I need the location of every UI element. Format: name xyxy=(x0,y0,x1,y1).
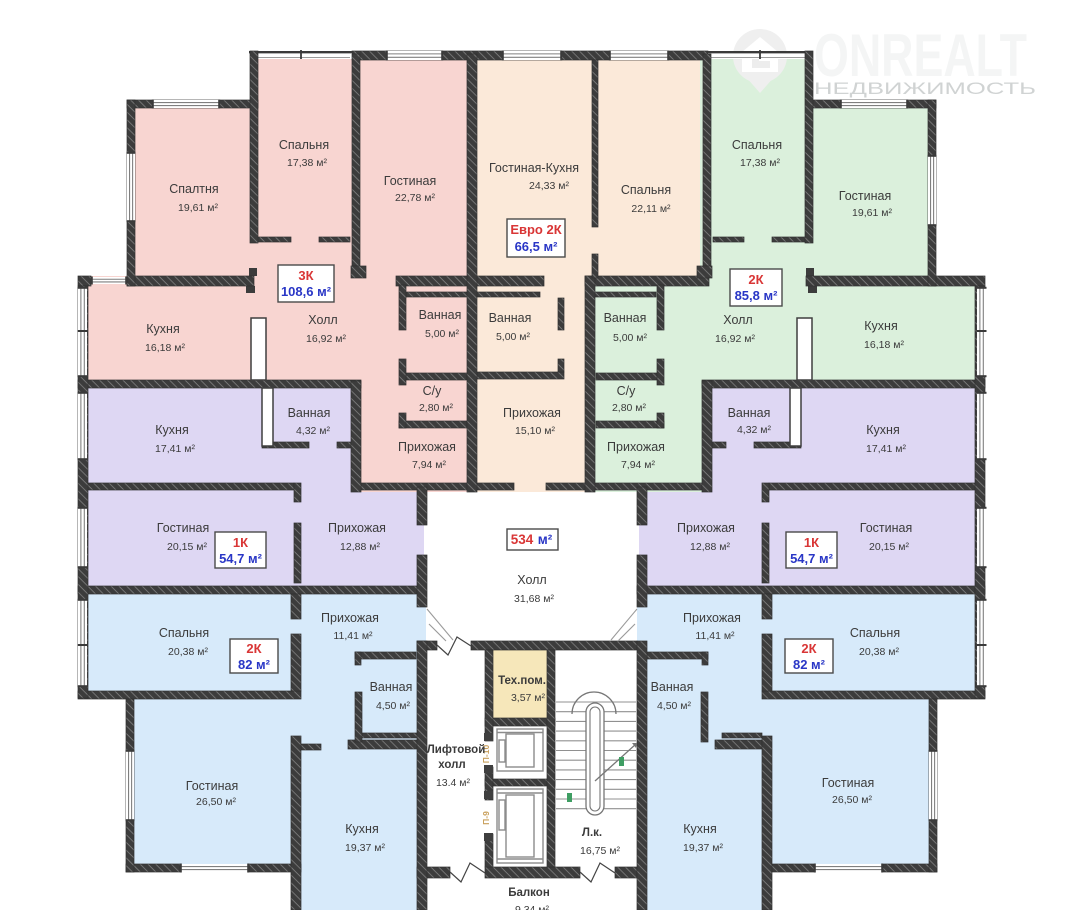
svg-text:24,33 м²: 24,33 м² xyxy=(529,180,569,192)
svg-text:16,18 м²: 16,18 м² xyxy=(864,339,904,351)
svg-text:534: 534 xyxy=(511,532,534,547)
svg-text:85,8 м²: 85,8 м² xyxy=(735,288,779,303)
svg-text:12,88 м²: 12,88 м² xyxy=(340,541,380,553)
svg-text:Прихожая: Прихожая xyxy=(321,611,379,625)
svg-text:Спальня: Спальня xyxy=(159,626,209,640)
svg-text:Ванная: Ванная xyxy=(419,308,462,322)
svg-text:4,32 м²: 4,32 м² xyxy=(296,425,331,437)
svg-text:Гостиная: Гостиная xyxy=(157,521,209,535)
svg-text:22,78 м²: 22,78 м² xyxy=(395,192,435,204)
svg-text:5,00 м²: 5,00 м² xyxy=(496,331,531,343)
svg-text:7,94 м²: 7,94 м² xyxy=(412,459,447,471)
svg-text:17,38 м²: 17,38 м² xyxy=(287,157,327,169)
svg-text:Ванная: Ванная xyxy=(288,406,331,420)
svg-text:2К: 2К xyxy=(748,272,763,287)
svg-text:Кухня: Кухня xyxy=(155,423,188,437)
svg-text:Гостиная-Кухня: Гостиная-Кухня xyxy=(489,161,579,175)
svg-text:Холл: Холл xyxy=(308,313,337,327)
svg-text:Ванная: Ванная xyxy=(604,311,647,325)
svg-text:П-9: П-9 xyxy=(481,811,491,825)
svg-text:16,18 м²: 16,18 м² xyxy=(145,342,185,354)
svg-text:4,50 м²: 4,50 м² xyxy=(657,700,692,712)
svg-text:2,80 м²: 2,80 м² xyxy=(612,402,647,414)
svg-text:Л.к.: Л.к. xyxy=(582,827,602,839)
svg-text:9,34 м²: 9,34 м² xyxy=(515,904,550,910)
svg-text:7,94 м²: 7,94 м² xyxy=(621,459,656,471)
svg-text:66,5 м²: 66,5 м² xyxy=(515,239,559,254)
svg-text:3К: 3К xyxy=(298,268,313,283)
svg-text:17,41 м²: 17,41 м² xyxy=(155,443,195,455)
svg-text:Гостиная: Гостиная xyxy=(186,779,238,793)
svg-text:Гостиная: Гостиная xyxy=(860,521,912,535)
svg-text:20,15 м²: 20,15 м² xyxy=(167,541,207,553)
svg-text:Прихожая: Прихожая xyxy=(503,406,561,420)
svg-text:Прихожая: Прихожая xyxy=(398,440,456,454)
svg-text:11,41 м²: 11,41 м² xyxy=(695,630,735,642)
svg-text:холл: холл xyxy=(438,759,465,771)
svg-text:4,50 м²: 4,50 м² xyxy=(376,700,411,712)
svg-text:Ванная: Ванная xyxy=(489,311,532,325)
svg-text:Прихожая: Прихожая xyxy=(677,521,735,535)
svg-text:54,7 м²: 54,7 м² xyxy=(219,551,263,566)
svg-text:12,88 м²: 12,88 м² xyxy=(690,541,730,553)
svg-text:19,61 м²: 19,61 м² xyxy=(852,207,892,219)
svg-text:20,38 м²: 20,38 м² xyxy=(859,646,899,658)
svg-text:2,80 м²: 2,80 м² xyxy=(419,402,454,414)
svg-text:Гостиная: Гостиная xyxy=(839,189,891,203)
svg-text:Ванная: Ванная xyxy=(651,680,694,694)
svg-text:19,37 м²: 19,37 м² xyxy=(683,842,723,854)
svg-text:2К: 2К xyxy=(246,641,261,656)
svg-text:54,7 м²: 54,7 м² xyxy=(790,551,834,566)
svg-text:ONREALT: ONREALT xyxy=(814,22,1027,89)
svg-text:4,32 м²: 4,32 м² xyxy=(737,424,772,436)
svg-text:20,15 м²: 20,15 м² xyxy=(869,541,909,553)
svg-text:Спальня: Спальня xyxy=(621,183,671,197)
svg-text:22,11 м²: 22,11 м² xyxy=(631,203,671,215)
svg-text:Спальня: Спальня xyxy=(850,626,900,640)
svg-text:82 м²: 82 м² xyxy=(238,657,271,672)
svg-text:Ванная: Ванная xyxy=(728,406,771,420)
svg-text:16,92 м²: 16,92 м² xyxy=(715,333,755,345)
svg-text:31,68 м²: 31,68 м² xyxy=(514,593,554,605)
svg-text:1К: 1К xyxy=(233,535,248,550)
svg-text:82 м²: 82 м² xyxy=(793,657,826,672)
svg-text:Кухня: Кухня xyxy=(864,319,897,333)
svg-text:Лифтовой: Лифтовой xyxy=(427,744,486,756)
svg-text:108,6 м²: 108,6 м² xyxy=(281,284,332,299)
svg-text:Гостиная: Гостиная xyxy=(384,174,436,188)
svg-text:5,00 м²: 5,00 м² xyxy=(425,328,460,340)
svg-text:Балкон: Балкон xyxy=(508,887,550,899)
svg-text:м²: м² xyxy=(538,532,553,547)
svg-text:17,41 м²: 17,41 м² xyxy=(866,443,906,455)
svg-text:20,38 м²: 20,38 м² xyxy=(168,646,208,658)
svg-text:1К: 1К xyxy=(804,535,819,550)
svg-text:15,10 м²: 15,10 м² xyxy=(515,425,555,437)
svg-text:2К: 2К xyxy=(801,641,816,656)
svg-text:Холл: Холл xyxy=(517,573,546,587)
svg-text:Прихожая: Прихожая xyxy=(607,440,665,454)
svg-text:13.4 м²: 13.4 м² xyxy=(436,777,471,789)
svg-text:26,50 м²: 26,50 м² xyxy=(196,796,236,808)
svg-text:Евро 2К: Евро 2К xyxy=(510,222,561,237)
svg-text:16,75 м²: 16,75 м² xyxy=(580,845,620,857)
svg-text:Кухня: Кухня xyxy=(345,822,378,836)
svg-text:26,50 м²: 26,50 м² xyxy=(832,794,872,806)
svg-text:Кухня: Кухня xyxy=(146,322,179,336)
svg-text:19,37 м²: 19,37 м² xyxy=(345,842,385,854)
svg-text:Холл: Холл xyxy=(723,313,752,327)
svg-text:Спалтня: Спалтня xyxy=(169,182,218,196)
svg-text:Гостиная: Гостиная xyxy=(822,776,874,790)
svg-text:Прихожая: Прихожая xyxy=(328,521,386,535)
svg-text:19,61 м²: 19,61 м² xyxy=(178,202,218,214)
svg-text:Ванная: Ванная xyxy=(370,680,413,694)
svg-text:Спальня: Спальня xyxy=(732,138,782,152)
svg-text:С/у: С/у xyxy=(617,384,637,398)
svg-text:3,57 м²: 3,57 м² xyxy=(511,692,546,704)
svg-text:Прихожая: Прихожая xyxy=(683,611,741,625)
svg-text:17,38 м²: 17,38 м² xyxy=(740,157,780,169)
svg-text:Кухня: Кухня xyxy=(866,423,899,437)
svg-text:С/у: С/у xyxy=(423,384,443,398)
svg-text:11,41 м²: 11,41 м² xyxy=(333,630,373,642)
svg-text:Кухня: Кухня xyxy=(683,822,716,836)
svg-text:Тех.пом.: Тех.пом. xyxy=(498,675,546,687)
svg-text:НЕДВИЖИМОСТЬ: НЕДВИЖИМОСТЬ xyxy=(814,80,1036,98)
svg-text:5,00 м²: 5,00 м² xyxy=(613,332,648,344)
svg-text:16,92 м²: 16,92 м² xyxy=(306,333,346,345)
svg-text:Спальня: Спальня xyxy=(279,138,329,152)
